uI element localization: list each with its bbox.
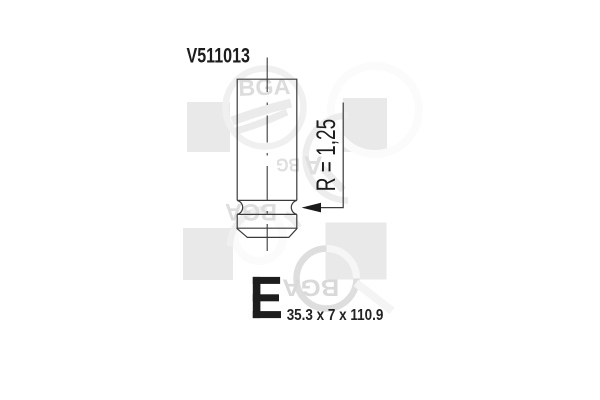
- svg-text:BGA: BGA: [282, 273, 339, 300]
- svg-text:35.3 x 7 x 110.9: 35.3 x 7 x 110.9: [287, 307, 384, 324]
- svg-text:V511013: V511013: [187, 45, 251, 68]
- svg-text:R = 1,25: R = 1,25: [311, 119, 341, 192]
- svg-text:BGA: BGA: [238, 73, 291, 101]
- svg-text:BGA: BGA: [225, 198, 277, 225]
